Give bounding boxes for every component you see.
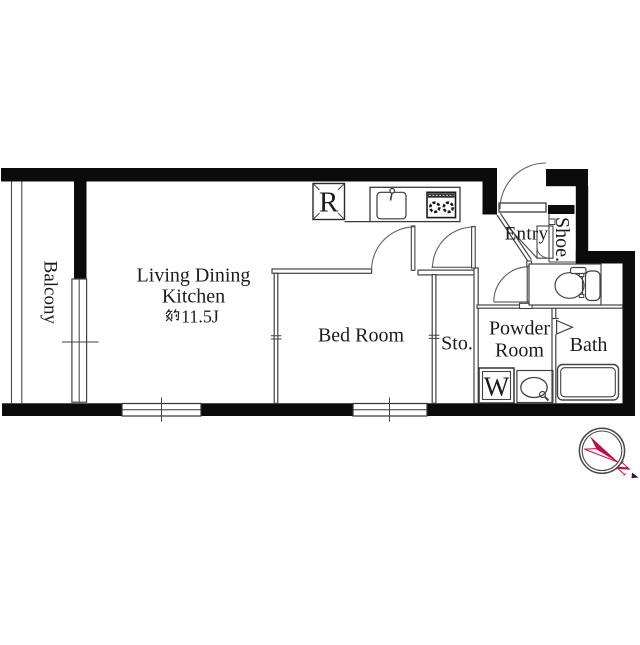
svg-text:Room: Room	[495, 340, 544, 362]
svg-text:Kitchen: Kitchen	[162, 286, 225, 308]
svg-text:Powder: Powder	[489, 318, 550, 340]
svg-text:Living Dining: Living Dining	[137, 265, 251, 287]
svg-text:Balcony: Balcony	[40, 261, 61, 325]
svg-text:W: W	[484, 372, 510, 402]
svg-text:R: R	[319, 187, 339, 219]
svg-text:11.5J: 11.5J	[181, 307, 219, 327]
svg-text:Shoe.: Shoe.	[551, 217, 573, 262]
svg-text:Entry: Entry	[505, 224, 549, 245]
svg-text:Bed Room: Bed Room	[318, 324, 405, 346]
svg-text:Sto.: Sto.	[441, 333, 473, 355]
svg-text:Bath: Bath	[570, 334, 608, 356]
